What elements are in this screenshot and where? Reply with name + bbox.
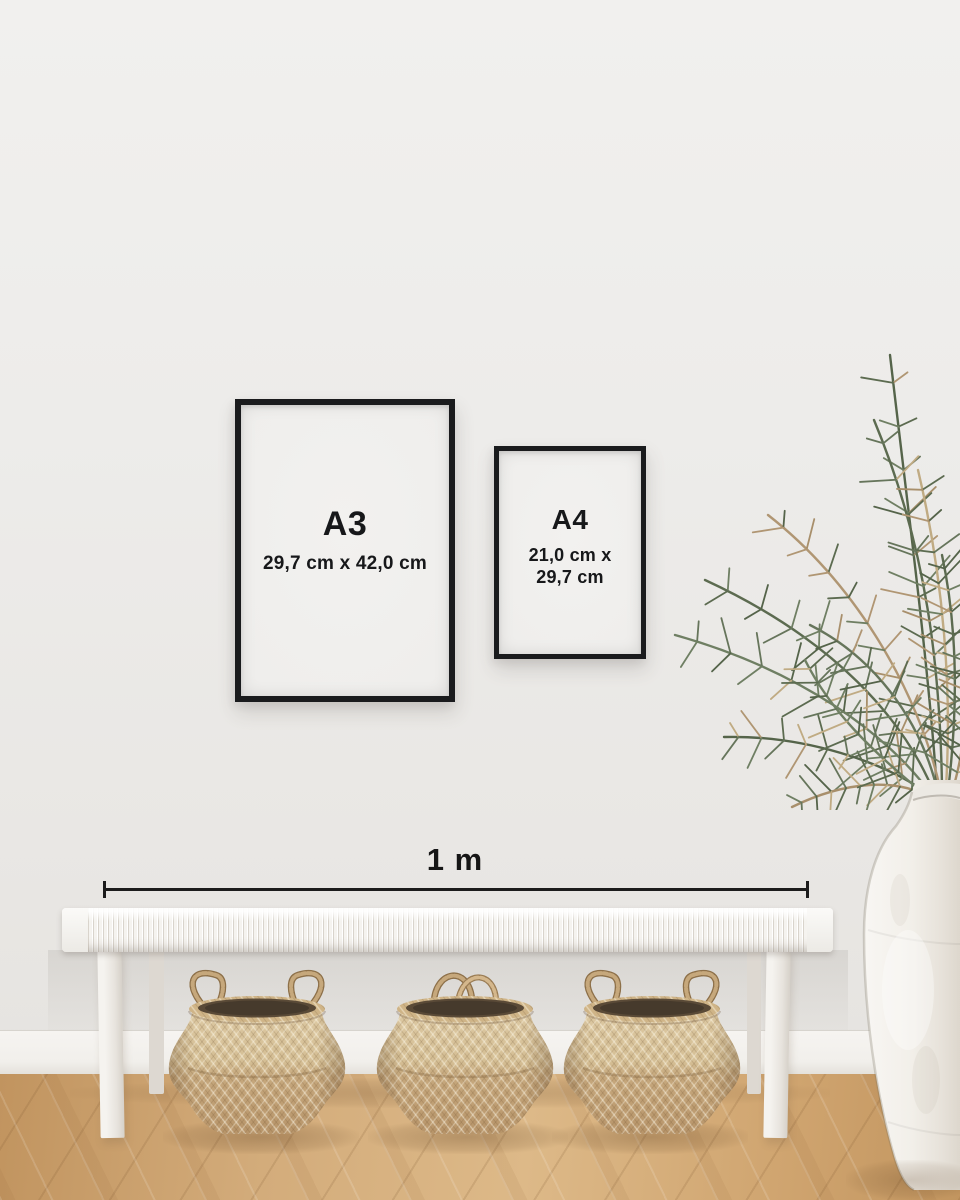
basket-left bbox=[169, 973, 345, 1134]
scale-bar-label: 1 m bbox=[427, 842, 483, 878]
basket-right bbox=[564, 973, 740, 1134]
a3-frame: A3 29,7 cm x 42,0 cm bbox=[235, 399, 455, 702]
a4-frame: A4 21,0 cm x 29,7 cm bbox=[494, 446, 646, 659]
room-scene: A3 29,7 cm x 42,0 cm A4 21,0 cm x 29,7 c… bbox=[0, 0, 960, 1200]
a4-paper: A4 21,0 cm x 29,7 cm bbox=[499, 451, 641, 654]
a4-size: 21,0 cm x 29,7 cm bbox=[529, 544, 612, 588]
scale-bar-tick-right bbox=[806, 881, 809, 898]
a3-paper: A3 29,7 cm x 42,0 cm bbox=[241, 405, 449, 696]
baskets bbox=[0, 940, 960, 1200]
basket-center bbox=[377, 976, 553, 1134]
a4-size-line2: 29,7 cm bbox=[529, 566, 612, 588]
a4-label: A4 bbox=[552, 506, 589, 534]
a4-size-line1: 21,0 cm x bbox=[529, 544, 612, 566]
scale-bar-line bbox=[103, 888, 809, 891]
a3-size: 29,7 cm x 42,0 cm bbox=[263, 553, 427, 575]
palm-plant bbox=[620, 325, 960, 810]
a3-label: A3 bbox=[323, 507, 367, 541]
scale-bar-tick-left bbox=[103, 881, 106, 898]
